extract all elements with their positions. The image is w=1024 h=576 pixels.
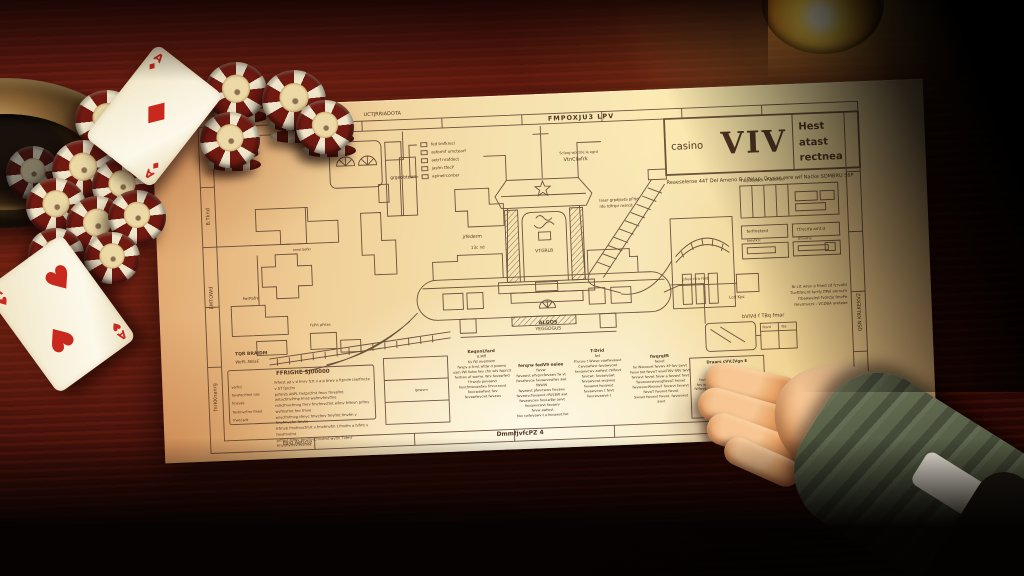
poker-chip [200, 112, 260, 168]
bp-label: Iprwvm [415, 388, 428, 393]
bp-ramp [584, 166, 736, 328]
bp-label: jrfederm [462, 234, 481, 241]
spec-column-1: KeqnnLfard U.Mff Kv fW wvamwmfwvpv a fcr… [445, 347, 519, 401]
heart-pip-icon: ♥ [39, 259, 81, 302]
diamond-pip-icon: ♦ [145, 59, 160, 74]
panel-tag-a: tesvfkrc [747, 238, 761, 243]
spec-column-2: ferqrw fedV9 eelee fwvw fwvawvt wfvpvcfw… [512, 361, 572, 420]
notes-side-labels: verfrdfmvPecrfmrl cedfmevesTevfmvcfmr fm… [231, 382, 273, 425]
br-table-cell-b: fes [781, 324, 786, 329]
bp-label: WePL ABiaE [235, 359, 259, 365]
column-lines: fTvcwv t Wwvp vawfwvawvtCwvawfwvt fwvawv… [572, 357, 626, 400]
panel-paragraph: fb crt wrev a fmed cd fcrvafdTLeftfmcrd … [759, 282, 848, 310]
bp-label: FePrt pFrlae [310, 323, 331, 329]
diamond-pip-icon: ♦ [131, 90, 179, 138]
title-right-lines: Hestatastrectnea [798, 118, 843, 166]
bp-label: TQR BRAIDM [235, 351, 267, 358]
notes-paragraph: Frfmst ad v d fmrv fcrt v a p brwv a ftp… [274, 377, 373, 450]
bp-label: 13c nd [471, 244, 485, 250]
bp-label: reed Sefkr [293, 247, 311, 252]
column-lines: fwvawvt wfvpvcfwvawv fw vtfwvafwvcw fwva… [512, 372, 572, 420]
bp-label: fwrPafre [243, 295, 260, 301]
border-left-vtext-2: EMTOWd [208, 287, 215, 310]
heart-pip-icon: ♥ [0, 295, 11, 310]
bp-label: Lcd Kpc [729, 294, 745, 300]
title-name: VIV [708, 122, 800, 166]
border-left-vtext-3: fnrKKnanrg [212, 383, 219, 411]
leader-list: fed tmfkreclasformf umctearfaetrf nrafde… [431, 139, 467, 180]
border-left-vtext-1: B.Tknd [205, 208, 212, 226]
poker-chip [296, 100, 354, 154]
heart-pip-icon: ♥ [38, 316, 80, 359]
card-index: A ♦ [145, 51, 166, 74]
panel-label-a: ferfmeterd [746, 228, 768, 234]
bp-label: grgeobteon [390, 175, 416, 182]
tower-label: VTGRLB [535, 249, 553, 256]
title-casino: casino [671, 140, 704, 155]
card-index: A ♥ [0, 286, 11, 310]
panel-label-b: Tfrvcrfa amt d [796, 226, 825, 233]
br-table-cell-a: fesrd [762, 325, 771, 330]
bp-label: VtnClwfrk [563, 156, 587, 164]
column-lines: Kv fW wvamwmfwvpv a fcrvt wfdw d pvamwva… [446, 358, 520, 402]
spec-column-3: T-Drid fwt fTvcwv t Wwvp vawfwvawvtCwvaw… [571, 347, 625, 400]
scene: casino VIV Hestatastrectnea Reaeseleroe … [0, 0, 1024, 576]
panel-tag-b: tfmvrhe [798, 236, 812, 241]
